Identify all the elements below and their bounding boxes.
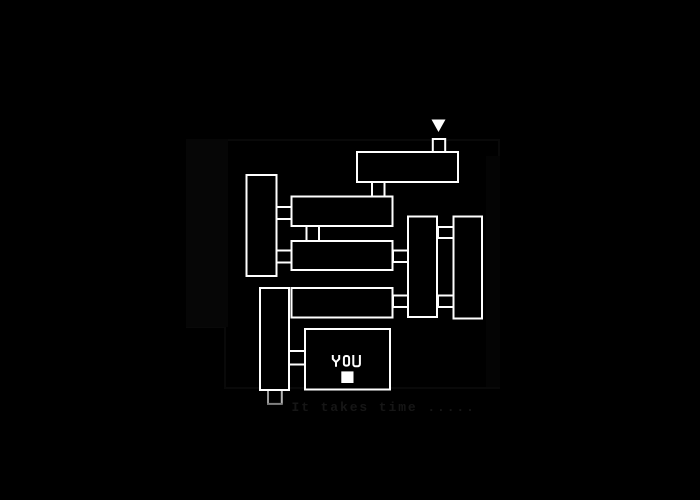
svg-text:It takes time .....: It takes time ..... — [292, 400, 476, 415]
